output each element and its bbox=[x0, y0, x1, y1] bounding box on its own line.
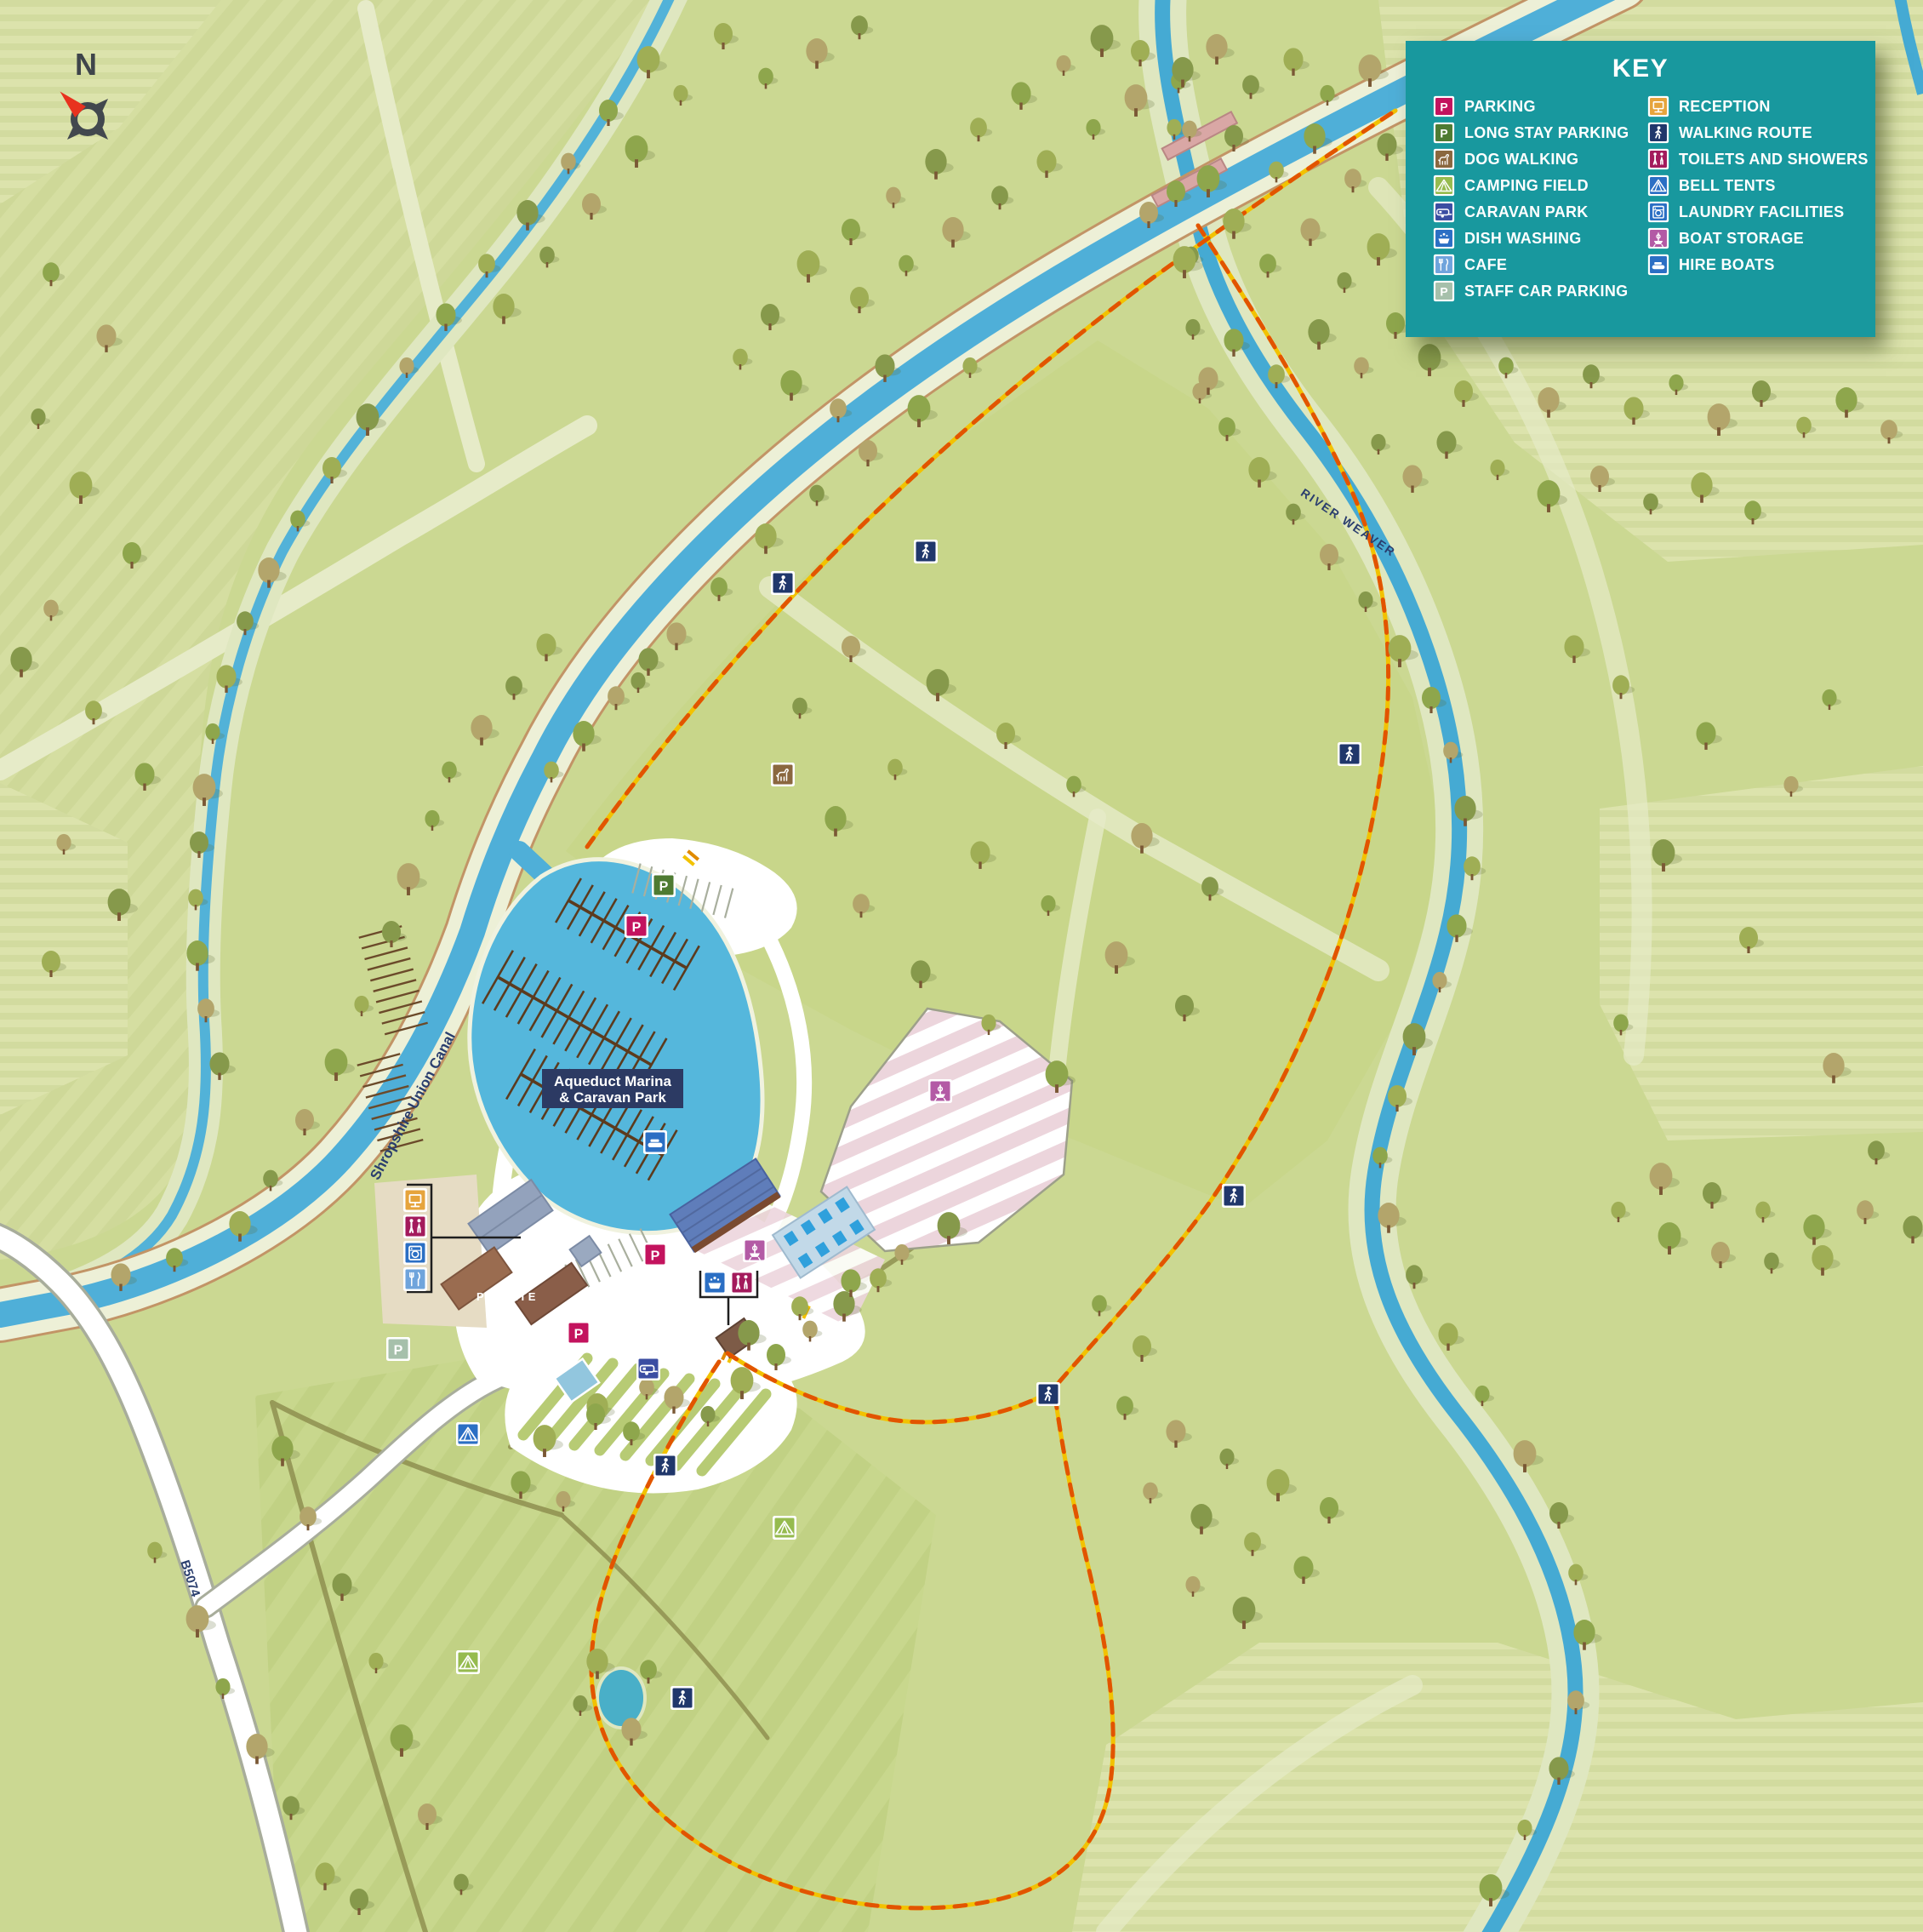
key-item-laundry: LAUNDRY FACILITIES bbox=[1647, 202, 1869, 222]
key-item-reception: RECEPTION bbox=[1647, 96, 1869, 117]
boat-storage-icon bbox=[928, 1079, 952, 1103]
walking-route-icon bbox=[1338, 742, 1361, 766]
walking-route-icon bbox=[1222, 1184, 1246, 1208]
key-item-boat-storage: BOAT STORAGE bbox=[1647, 228, 1869, 249]
site-map: P bbox=[0, 0, 1923, 1932]
dog-walking-icon bbox=[1433, 148, 1455, 170]
key-item-long-stay-parking: LONG STAY PARKING bbox=[1433, 123, 1647, 143]
caravan-park-icon bbox=[636, 1357, 660, 1380]
key-item-camping-field: CAMPING FIELD bbox=[1433, 175, 1647, 196]
staff-car-parking-icon bbox=[1433, 280, 1455, 302]
compass-north-label: N bbox=[75, 47, 97, 82]
boat-storage-icon bbox=[743, 1238, 767, 1262]
key-item-caravan-park: CARAVAN PARK bbox=[1433, 202, 1647, 222]
marina-label: Aqueduct Marina & Caravan Park bbox=[542, 1069, 683, 1108]
svg-text:Aqueduct Marina: Aqueduct Marina bbox=[554, 1073, 671, 1089]
pond bbox=[599, 1670, 643, 1726]
cafe-icon bbox=[403, 1267, 427, 1291]
parking-icon bbox=[1433, 95, 1455, 117]
key-column-left: PARKING LONG STAY PARKING DOG WALKING CA… bbox=[1433, 96, 1647, 301]
key-item-walking-route: WALKING ROUTE bbox=[1647, 123, 1869, 143]
key-item-cafe: CAFE bbox=[1433, 254, 1647, 275]
key-item-toilets-showers: TOILETS AND SHOWERS bbox=[1647, 149, 1869, 169]
key-item-dish-washing: DISH WASHING bbox=[1433, 228, 1647, 249]
parking-icon bbox=[643, 1243, 667, 1266]
key-title: KEY bbox=[1406, 54, 1875, 83]
key-column-right: RECEPTION WALKING ROUTE TOILETS AND SHOW… bbox=[1647, 96, 1869, 301]
parking-icon bbox=[567, 1321, 591, 1345]
camping-field-icon bbox=[1433, 174, 1455, 197]
cafe-icon bbox=[1433, 254, 1455, 276]
walking-route-icon bbox=[771, 571, 795, 595]
boat-storage-icon bbox=[1647, 227, 1669, 249]
walking-route-icon bbox=[670, 1686, 694, 1710]
walking-route-icon bbox=[1647, 122, 1669, 144]
walking-route-icon bbox=[914, 540, 938, 563]
camping-field-icon bbox=[773, 1516, 796, 1540]
dish-washing-icon bbox=[703, 1271, 727, 1295]
hire-boats-icon bbox=[1647, 254, 1669, 276]
private-label: PRIVATE bbox=[476, 1290, 538, 1303]
key-item-bell-tents: BELL TENTS bbox=[1647, 175, 1869, 196]
map-key-panel: KEY PARKING LONG STAY PARKING DOG WALKIN… bbox=[1406, 41, 1875, 337]
key-item-hire-boats: HIRE BOATS bbox=[1647, 254, 1869, 275]
walking-route-icon bbox=[653, 1454, 677, 1478]
camping-field-icon bbox=[456, 1650, 480, 1674]
parking-icon bbox=[625, 914, 648, 938]
reception-icon bbox=[1647, 95, 1669, 117]
key-item-dog-walking: DOG WALKING bbox=[1433, 149, 1647, 169]
laundry-icon bbox=[1647, 201, 1669, 223]
laundry-icon bbox=[403, 1241, 427, 1265]
long-stay-parking-icon bbox=[652, 873, 676, 897]
reception-icon bbox=[403, 1188, 427, 1212]
caravan-park-icon bbox=[1433, 201, 1455, 223]
toilets-showers-icon bbox=[403, 1215, 427, 1238]
staff-car-parking-icon bbox=[386, 1337, 410, 1361]
dog-walking-icon bbox=[771, 763, 795, 786]
key-item-parking: PARKING bbox=[1433, 96, 1647, 117]
long-stay-parking-icon bbox=[1433, 122, 1455, 144]
toilets-showers-icon bbox=[730, 1271, 754, 1295]
dish-washing-icon bbox=[1433, 227, 1455, 249]
svg-text:& Caravan Park: & Caravan Park bbox=[559, 1089, 666, 1106]
hire-boats-icon bbox=[643, 1130, 667, 1154]
bell-tents-icon bbox=[1647, 174, 1669, 197]
bell-tents-icon bbox=[456, 1422, 480, 1446]
walking-route-icon bbox=[1036, 1382, 1060, 1406]
key-item-staff-car-parking: STAFF CAR PARKING bbox=[1433, 281, 1647, 301]
toilets-showers-icon bbox=[1647, 148, 1669, 170]
